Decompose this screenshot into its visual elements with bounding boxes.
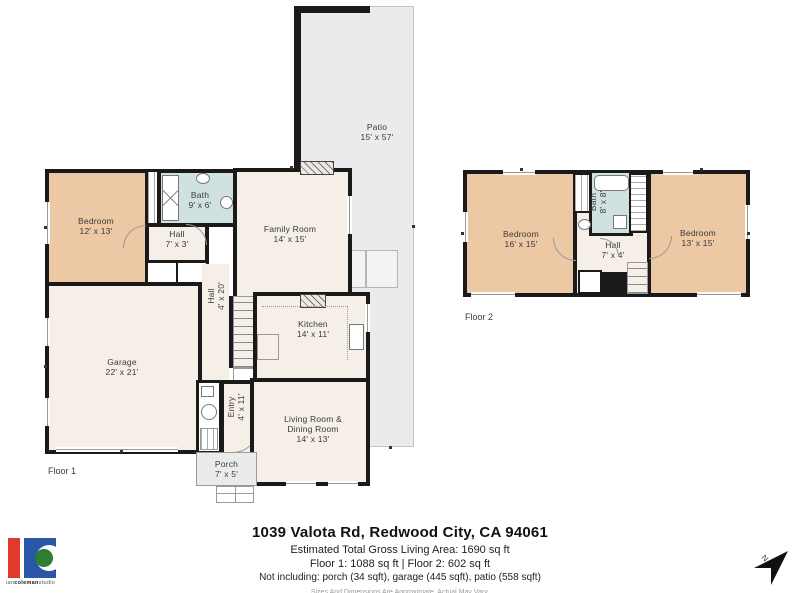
- utility-shelf: [200, 428, 218, 450]
- floor2-window: [463, 212, 468, 242]
- room-label-bedroom-2-left: Bedroom 16' x 15': [481, 229, 561, 249]
- dimension-tick: [520, 168, 523, 171]
- floor2-window: [471, 292, 515, 297]
- room-label-hall-corridor: Hall 4' x 20': [206, 266, 226, 326]
- studio-logo: [8, 538, 58, 578]
- toilet: [196, 173, 210, 184]
- floor2-wall-mass: [602, 272, 627, 294]
- floor2-window: [663, 170, 693, 175]
- closet: [629, 173, 648, 233]
- living-room-window: [328, 481, 358, 486]
- room-label-bedroom-2-right: Bedroom 13' x 15': [658, 228, 738, 248]
- disclaimer-text: Sizes And Dimensions Are Approximate, Ac…: [150, 589, 650, 593]
- garage-door: [56, 447, 178, 452]
- room-label-bath-1: Bath 9' x 6': [172, 190, 228, 210]
- room-label-garage: Garage 22' x 21': [82, 357, 162, 377]
- room-label-porch: Porch 7' x 5': [196, 459, 257, 479]
- room-label-living-dining: Living Room & Dining Room 14' x 13': [263, 414, 363, 444]
- dimension-tick: [44, 226, 47, 229]
- garage-window: [45, 398, 50, 426]
- living-room-window: [286, 481, 316, 486]
- patio-wall-top: [294, 6, 370, 13]
- room-label-patio: Patio 15' x 57': [342, 122, 412, 142]
- floor-plan-canvas: Patio 15' x 57' Family Room 14' x 15' Be…: [0, 0, 800, 593]
- address-title: 1039 Valota Rd, Redwood City, CA 94061: [150, 524, 650, 541]
- floor2-closet-bottom: [578, 270, 602, 294]
- dimension-tick: [389, 446, 392, 449]
- kitchen-window: [365, 304, 370, 332]
- patio-wall-left: [294, 6, 301, 172]
- floor2-window: [697, 292, 741, 297]
- room-label-kitchen: Kitchen 14' x 11': [273, 319, 353, 339]
- dimension-tick: [461, 232, 464, 235]
- dimension-tick: [747, 232, 750, 235]
- utility-sink: [201, 386, 214, 397]
- north-arrow-shape: [754, 551, 788, 585]
- floor2-label: Floor 2: [465, 312, 493, 322]
- logo-text: iancolemanstudio: [6, 580, 55, 586]
- sink: [613, 215, 627, 229]
- floor1-label: Floor 1: [48, 466, 76, 476]
- logo-red-bar: [8, 538, 20, 578]
- fireplace: [300, 161, 334, 175]
- dimension-tick: [120, 450, 123, 453]
- floor2-window: [503, 170, 535, 175]
- kitchen-counter: [262, 306, 348, 307]
- room-label-bath-2: Bath 8' x 8': [588, 172, 608, 232]
- staircase: [233, 296, 255, 368]
- family-room-window: [347, 196, 352, 234]
- exclusions-text: Not including: porch (34 sqft), garage (…: [150, 572, 650, 583]
- dimension-tick: [412, 225, 415, 228]
- living-area-text: Estimated Total Gross Living Area: 1690 …: [150, 544, 650, 556]
- dimension-tick: [44, 365, 47, 368]
- north-arrow: N: [748, 546, 794, 592]
- room-label-bedroom-1: Bedroom 12' x 13': [56, 216, 136, 236]
- staircase-2: [627, 262, 648, 294]
- patio-step: [350, 250, 366, 288]
- porch-steps: [216, 486, 254, 503]
- room-label-family-room: Family Room 14' x 15': [250, 224, 330, 244]
- patio-step: [366, 250, 398, 288]
- footer-info: 1039 Valota Rd, Redwood City, CA 94061 E…: [150, 524, 650, 593]
- floor-areas-text: Floor 1: 1088 sq ft | Floor 2: 602 sq ft: [150, 558, 650, 570]
- garage-window: [45, 318, 50, 346]
- water-heater: [201, 404, 217, 420]
- dimension-tick: [290, 166, 293, 169]
- dimension-tick: [700, 168, 703, 171]
- bedroom-window: [45, 202, 50, 244]
- logo-green-circle: [35, 549, 53, 567]
- hall-closet-divider: [176, 262, 178, 284]
- logo-blue-square: [24, 538, 56, 578]
